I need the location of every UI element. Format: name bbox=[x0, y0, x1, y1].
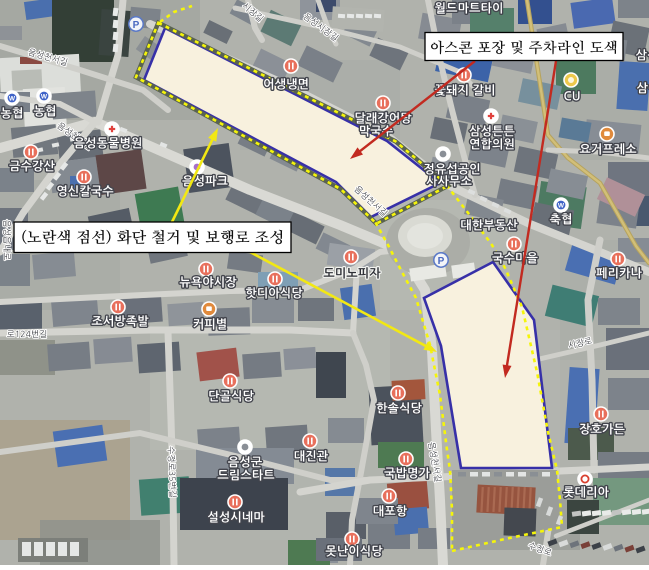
svg-text:W: W bbox=[41, 94, 48, 101]
svg-text:P: P bbox=[438, 256, 445, 267]
svg-text:W: W bbox=[9, 96, 16, 103]
svg-text:P: P bbox=[133, 20, 140, 31]
svg-text:W: W bbox=[558, 203, 565, 210]
